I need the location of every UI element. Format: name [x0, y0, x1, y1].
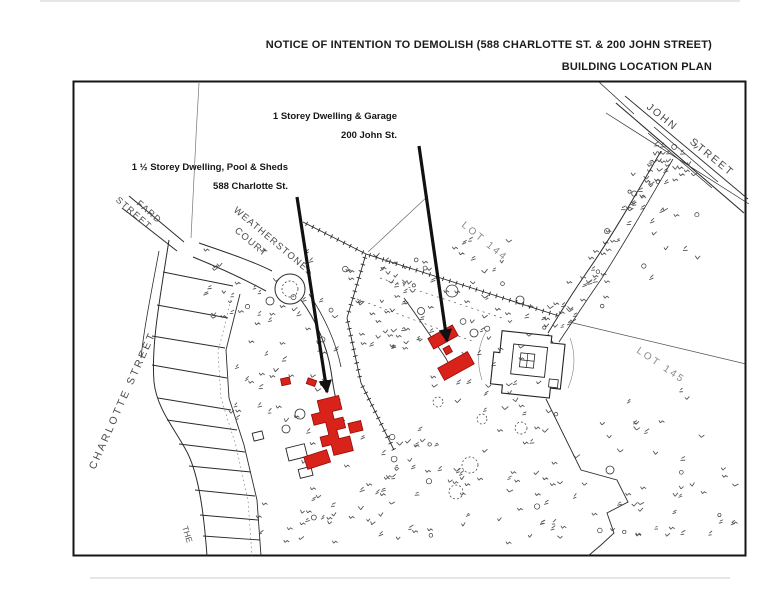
label-weatherstone-court: WEATHERSTONE COURT	[221, 205, 310, 285]
link-200-john	[443, 345, 453, 355]
leader-arrows	[297, 146, 447, 392]
shed-a-588-charlotte	[280, 377, 290, 386]
notice-title: NOTICE OF INTENTION TO DEMOLISH (588 CHA…	[266, 34, 712, 56]
plan-subtitle: BUILDING LOCATION PLAN	[266, 56, 712, 78]
demolition-buildings	[280, 325, 474, 469]
garage-200-john	[438, 352, 475, 381]
label-charlotte-street: CHARLOTTE STREET	[87, 330, 159, 471]
annotation-588-charlotte-line1: 1 ½ Storey Dwelling, Pool & Sheds	[132, 158, 288, 177]
annotation-588-charlotte: 1 ½ Storey Dwelling, Pool & Sheds 588 Ch…	[132, 158, 288, 196]
label-partial-the: THE	[180, 525, 195, 544]
charlotte-lots-strip	[152, 272, 261, 556]
shed-b-588-charlotte	[306, 378, 317, 387]
annotation-588-charlotte-line2: 588 Charlotte St.	[132, 177, 288, 196]
dwelling-588-charlotte	[308, 395, 353, 458]
tree-circles	[266, 285, 614, 499]
scanned-notice-page: CHARLOTTE STREET FARD STREET WEATHERSTON…	[0, 0, 768, 593]
outline-sheds	[252, 431, 313, 478]
map-frame	[74, 82, 746, 556]
label-lot-144: LOT 144	[459, 220, 510, 264]
vegetation-marks	[203, 141, 738, 544]
pool-588-charlotte	[304, 450, 331, 470]
building-location-plan: CHARLOTTE STREET FARD STREET WEATHERSTON…	[0, 0, 768, 593]
existing-building-complex	[490, 330, 566, 399]
page-header: NOTICE OF INTENTION TO DEMOLISH (588 CHA…	[266, 34, 712, 78]
label-lot-145: LOT 145	[634, 345, 687, 386]
annotation-200-john-line2: 200 John St.	[273, 126, 397, 145]
annotation-200-john: 1 Storey Dwelling & Garage 200 John St.	[273, 107, 397, 145]
street-linework	[122, 82, 749, 556]
annotation-200-john-line1: 1 Storey Dwelling & Garage	[273, 107, 397, 126]
arrow-to-200-john	[419, 146, 447, 341]
shed-588-charlotte	[348, 420, 363, 433]
